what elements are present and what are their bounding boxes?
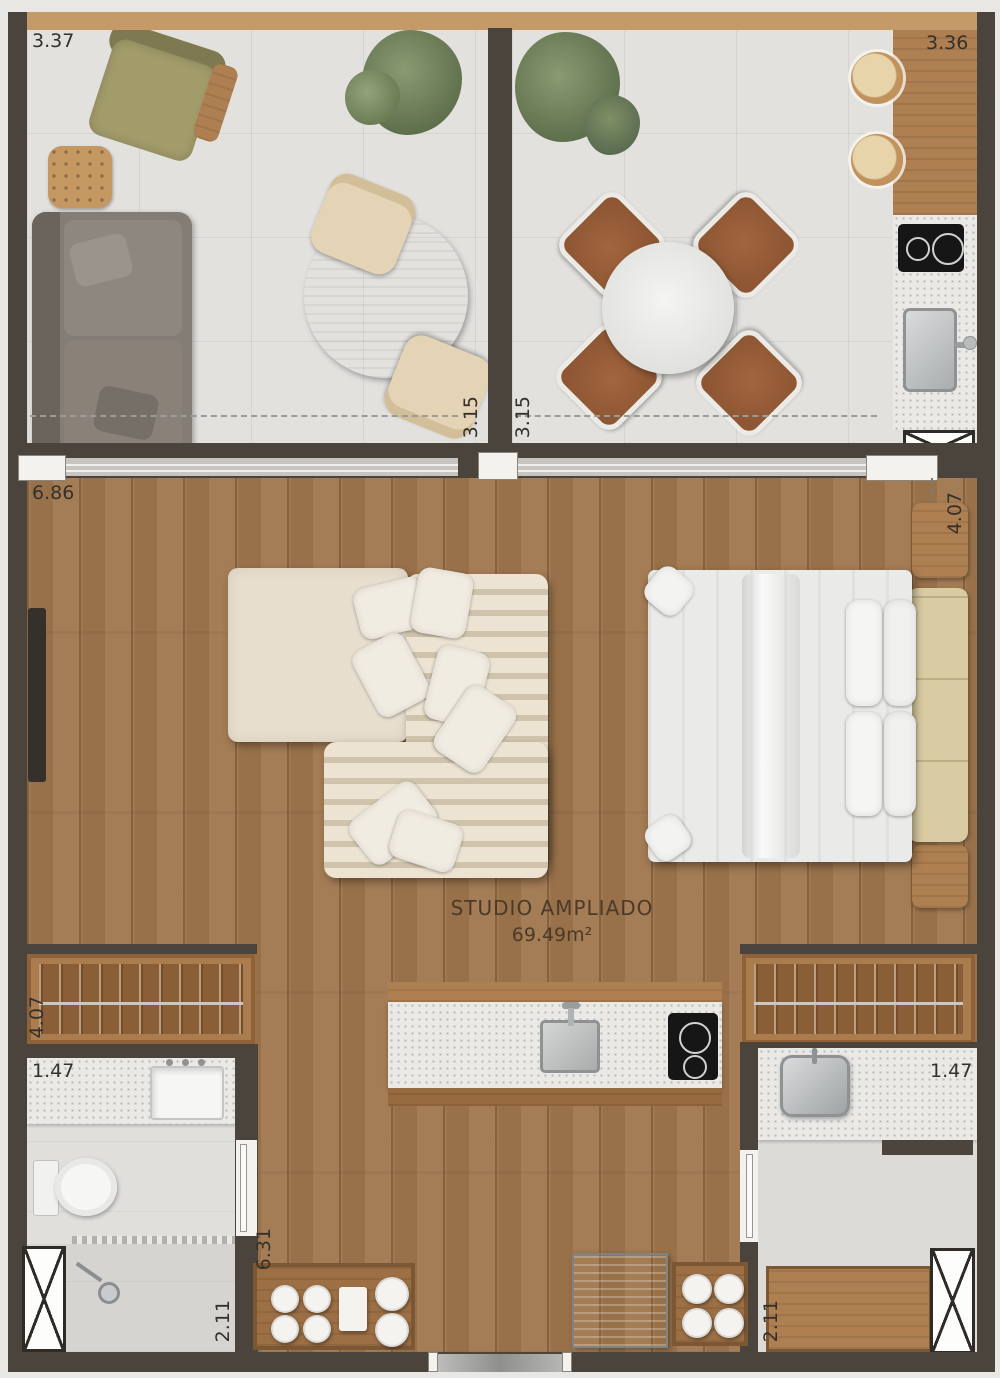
wardrobe-clothes (754, 964, 963, 1034)
bowl (682, 1274, 712, 1304)
console-left (253, 1263, 415, 1350)
entry-threshold (438, 1354, 562, 1372)
bed-duvet-fold (742, 574, 800, 858)
island-upper-cabinet (388, 982, 722, 1002)
side-table (48, 146, 112, 208)
dim-closet-length: 4.07 (28, 996, 47, 1038)
bowl (714, 1308, 744, 1338)
plan-area: 69.49m² (402, 924, 702, 946)
dish (271, 1285, 299, 1313)
floor-plan: 3.37 3.36 3.15 3.15 6.86 4.07 4.07 1.47 … (0, 0, 1000, 1378)
laundry-tank (780, 1055, 850, 1117)
ceiling-projection-line (30, 415, 458, 417)
island-faucet-stem (568, 1008, 574, 1026)
toilet-bowl (55, 1158, 117, 1216)
dim-bathroom-length: 2.11 (214, 1300, 233, 1342)
bed-headboard (908, 588, 968, 842)
kitchen-faucet-knob (963, 336, 977, 350)
tray (339, 1287, 367, 1331)
island-cooktop (668, 1013, 718, 1080)
mini-fridge (572, 1253, 668, 1348)
wall-divider-balcony-dining (488, 28, 512, 478)
wall-closet-right (740, 944, 977, 954)
burner (932, 233, 964, 265)
wall-right (977, 12, 995, 1372)
sofa (32, 212, 192, 466)
nightstand (912, 845, 968, 908)
door-jamb (18, 455, 66, 481)
sliding-door (514, 458, 870, 476)
bowl (682, 1308, 712, 1338)
kitchen-sink (903, 308, 957, 392)
island-lower-cabinet (388, 1088, 722, 1106)
dish (303, 1285, 331, 1313)
shower-partition-strip (72, 1236, 237, 1244)
door-jamb (428, 1352, 438, 1372)
wall-bathroom-top (25, 1044, 258, 1058)
dim-balcony-depth: 3.15 (462, 396, 481, 438)
plan-title: STUDIO AMPLIADO (402, 896, 702, 920)
dish (303, 1315, 331, 1343)
laundry-faucet (812, 1048, 817, 1064)
bath-sink (150, 1066, 224, 1120)
ceiling-projection-line (515, 415, 877, 417)
kitchen-counter-wood (893, 30, 977, 215)
bath-faucet-dot (182, 1059, 189, 1066)
kitchen-cooktop (898, 224, 964, 272)
wardrobe-left (27, 954, 255, 1044)
bathroom-door-leaf (240, 1144, 247, 1232)
service-door-leaf (746, 1154, 753, 1238)
dim-service-width: 1.47 (930, 1062, 972, 1081)
plan-title-block: STUDIO AMPLIADO 69.49m² (402, 896, 702, 946)
dim-studio-width: 6.86 (32, 484, 74, 503)
shower-head (98, 1282, 120, 1304)
sliding-door (66, 458, 458, 476)
dim-bathroom-width: 1.47 (32, 1062, 74, 1081)
bowl (375, 1313, 409, 1347)
door-jamb (562, 1352, 572, 1372)
bed-pillow (884, 712, 916, 816)
bar-stool (851, 52, 903, 104)
bowl (714, 1274, 744, 1304)
wardrobe-rail (39, 1002, 243, 1005)
pillow (409, 566, 476, 641)
wall-left (8, 12, 27, 1372)
duct-shaft (22, 1246, 66, 1352)
dim-service-length: 2.11 (762, 1300, 781, 1342)
dish (271, 1315, 299, 1343)
bed-pillow (846, 712, 882, 816)
console-right (672, 1262, 748, 1346)
burner (679, 1022, 711, 1054)
bowl (375, 1277, 409, 1311)
wardrobe-right (742, 954, 975, 1044)
tv-panel (28, 608, 46, 782)
dining-table (602, 242, 734, 374)
dim-dining-depth: 3.15 (514, 396, 533, 438)
door-jamb (866, 455, 938, 481)
dim-lower-span: 6.31 (255, 1228, 274, 1270)
dim-dining-width: 3.36 (926, 34, 968, 53)
bar-stool (851, 134, 903, 186)
duct-shaft (930, 1248, 975, 1354)
wall-closet-left (25, 944, 257, 954)
burner (683, 1055, 707, 1079)
door-jamb (478, 452, 518, 480)
bath-faucet-dot (166, 1059, 173, 1066)
laundry-shelf (882, 1140, 973, 1155)
dim-studio-depth: 4.07 (946, 492, 965, 534)
bed-pillow (884, 600, 916, 706)
dim-balcony-width: 3.37 (32, 32, 74, 51)
island-sink (540, 1020, 600, 1073)
wardrobe-rail (754, 1002, 963, 1005)
bath-faucet-dot (198, 1059, 205, 1066)
bed-pillow (846, 600, 882, 706)
laundry-cabinet (766, 1266, 932, 1352)
sofa-back (32, 212, 60, 466)
burner (906, 237, 930, 261)
wardrobe-clothes (39, 964, 243, 1034)
